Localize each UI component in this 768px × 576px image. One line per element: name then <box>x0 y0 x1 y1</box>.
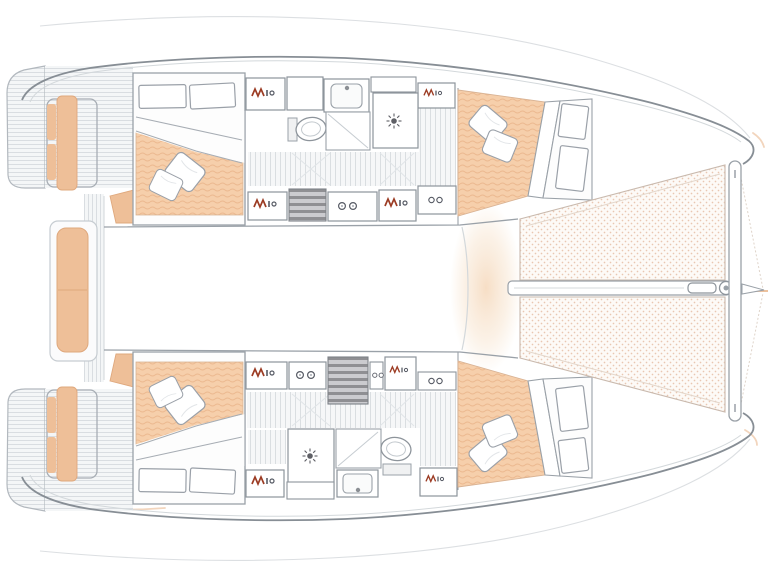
anchor-roller-pin <box>724 286 729 291</box>
aft-cabin-port <box>133 73 245 225</box>
transom-bench-cushion <box>57 96 77 190</box>
aft-cabin-starboard <box>133 352 245 504</box>
cabin-sole <box>248 152 456 186</box>
bowsprit <box>688 283 716 293</box>
shower-head-symbol <box>387 114 402 129</box>
berth-cushion <box>555 145 588 191</box>
floor-plan-page: Catamaran sailboat interior floor plan, … <box>0 0 768 576</box>
counter <box>287 482 334 499</box>
shower-head-symbol <box>303 449 318 464</box>
floor-plan-svg <box>0 0 768 576</box>
transom-cushion-strip <box>47 144 56 180</box>
toilet <box>295 116 328 143</box>
bow-bridle-line <box>739 168 763 289</box>
transom-cushion-strip <box>47 104 56 140</box>
cockpit-corner-cushion <box>110 354 134 387</box>
cabin-sole <box>248 430 286 464</box>
faucet <box>345 86 349 90</box>
counter <box>287 77 323 110</box>
toilet-tank <box>383 464 411 475</box>
counter <box>371 77 416 92</box>
locker <box>246 78 285 110</box>
toilet <box>380 436 413 463</box>
bow-tip <box>742 284 764 294</box>
faucet <box>356 488 360 492</box>
forward-cabin-starboard <box>458 361 592 487</box>
locker <box>418 83 455 108</box>
locker <box>385 357 416 390</box>
swim-platform-port <box>7 66 133 190</box>
forward-cabin-port <box>458 90 592 216</box>
forward-crossbeam <box>729 161 741 421</box>
cabin-sole <box>419 108 456 154</box>
swim-platform <box>7 66 45 188</box>
locker <box>420 468 457 496</box>
waterline-accent <box>753 133 764 147</box>
headboard-cushion <box>139 85 186 109</box>
swim-platform-starboard <box>7 387 133 511</box>
berth-cushion <box>558 104 589 140</box>
cabin-sole <box>420 392 456 466</box>
starboard-hull-mid <box>245 352 458 500</box>
companionway-steps <box>289 189 326 221</box>
cockpit-corner-cushion <box>110 190 134 223</box>
headboard-cushion <box>189 83 235 109</box>
port-hull-mid <box>245 75 458 225</box>
companionway-steps <box>328 357 368 404</box>
bow-bridle-line <box>739 293 763 414</box>
cockpit <box>50 190 134 387</box>
